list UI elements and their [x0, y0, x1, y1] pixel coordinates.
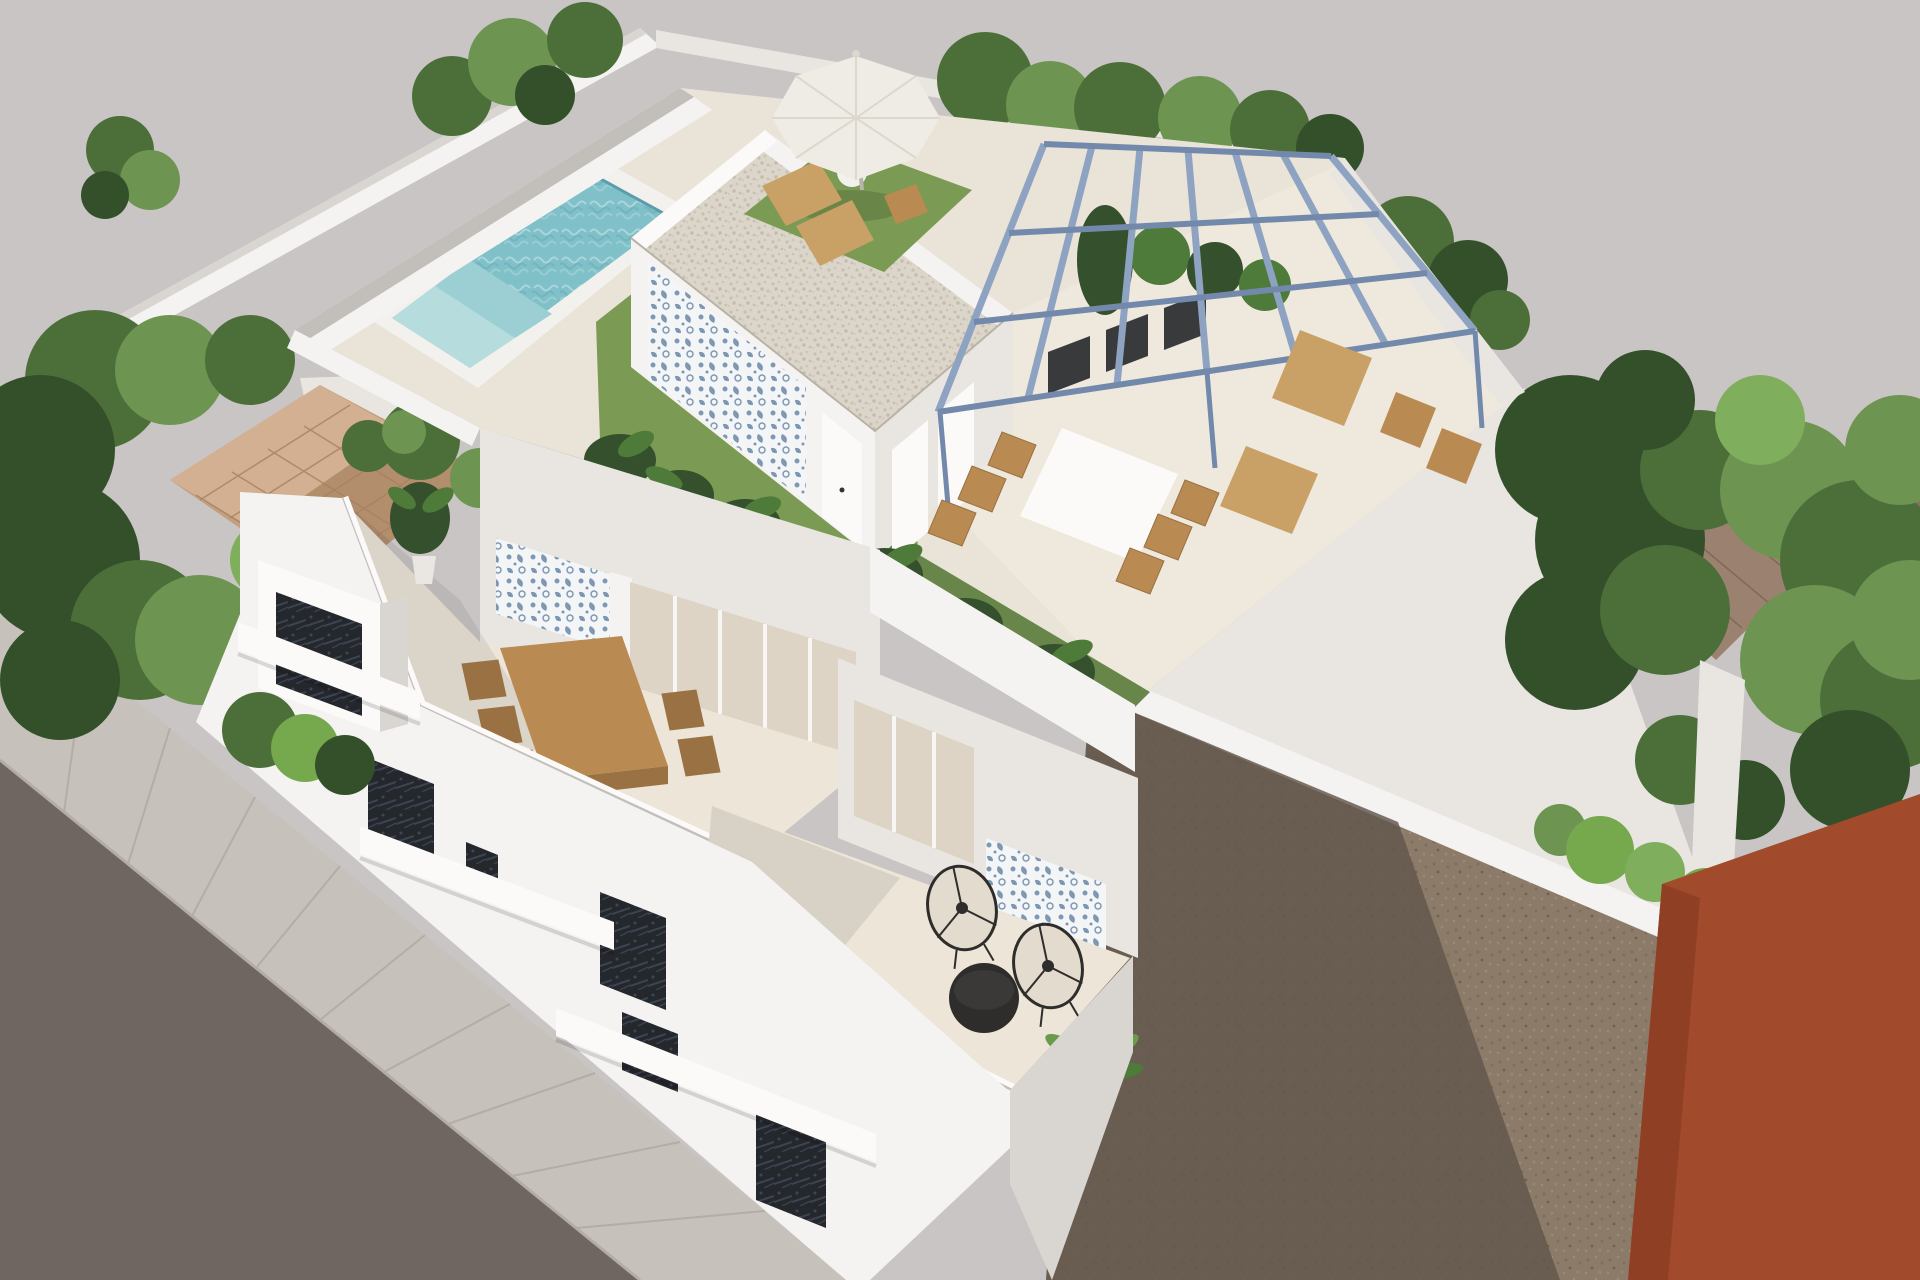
architectural-render-page: Aerial 3D architectural rendering of a m…: [0, 0, 1920, 1280]
architectural-render: Aerial 3D architectural rendering of a m…: [0, 0, 1920, 1280]
round-coffee-table: [949, 963, 1019, 1033]
door-handle: [840, 488, 845, 493]
